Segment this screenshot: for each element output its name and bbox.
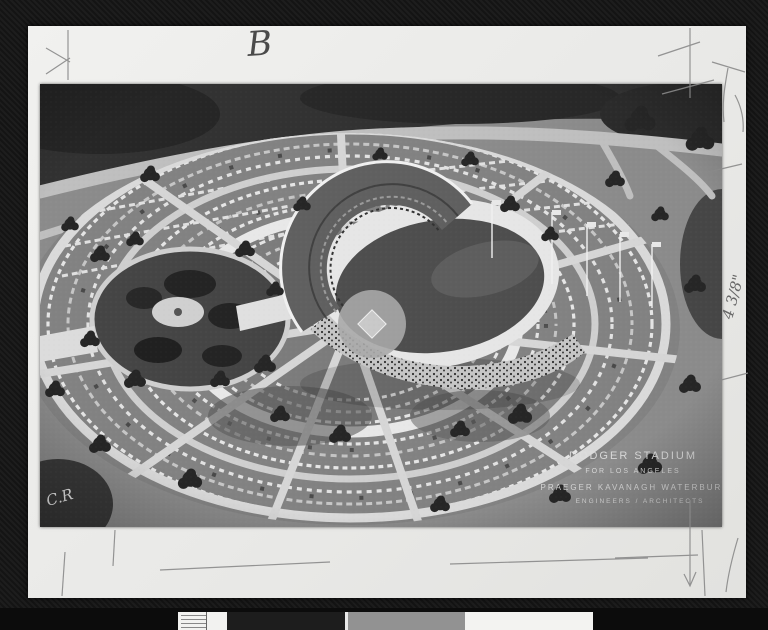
stadium-rendering: DODGER STADIUM FOR LOS ANGELES PRAEGER K… xyxy=(40,84,722,527)
aerial-photograph: DODGER STADIUM FOR LOS ANGELES PRAEGER K… xyxy=(40,84,722,527)
grayscale-calibration-strip xyxy=(0,608,768,630)
scanned-photo-page: DODGER STADIUM FOR LOS ANGELES PRAEGER K… xyxy=(0,0,768,630)
strip-label-chip xyxy=(178,612,228,630)
strip-dark-patch xyxy=(227,612,345,630)
strip-white-patch xyxy=(465,612,593,630)
strip-midgray-patch xyxy=(348,612,465,630)
